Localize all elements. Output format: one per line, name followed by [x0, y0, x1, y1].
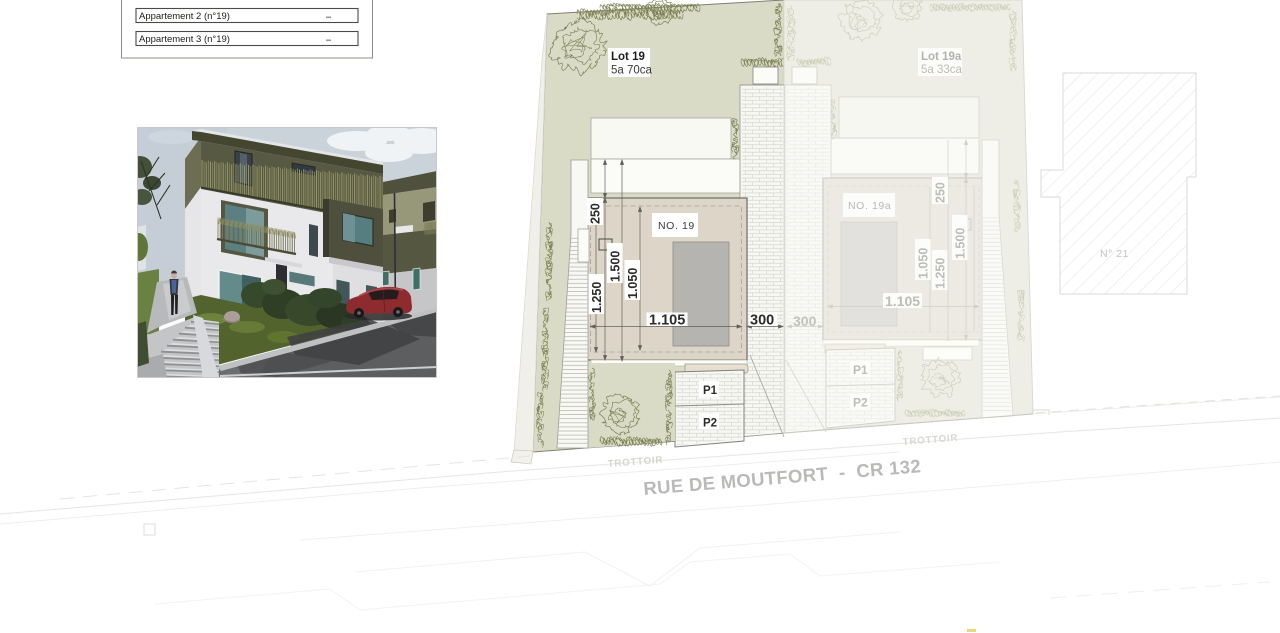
svg-text:1.250: 1.250 — [934, 258, 948, 289]
svg-text:300: 300 — [750, 313, 774, 329]
svg-text:NO. 19a: NO. 19a — [848, 200, 891, 212]
svg-text:1.050: 1.050 — [917, 248, 931, 279]
svg-text:TROTTOIR: TROTTOIR — [607, 455, 663, 470]
svg-text:1.050: 1.050 — [626, 268, 640, 299]
svg-text:NO. 19: NO. 19 — [658, 220, 695, 232]
svg-text:RUE DE MOUTFORT - CR 132: RUE DE MOUTFORT - CR 132 — [643, 455, 922, 499]
svg-text:1.105: 1.105 — [649, 313, 685, 329]
svg-text:N° 21: N° 21 — [1100, 248, 1129, 260]
svg-text:TROTTOIR: TROTTOIR — [902, 433, 958, 448]
svg-text:P2: P2 — [853, 396, 868, 410]
svg-text:1.500: 1.500 — [954, 228, 968, 259]
svg-text:250: 250 — [589, 203, 603, 224]
svg-text:Appartement 2 (n°19): Appartement 2 (n°19) — [139, 11, 230, 22]
svg-text:1.250: 1.250 — [590, 282, 604, 313]
svg-text:5a 33ca: 5a 33ca — [921, 64, 963, 76]
svg-text:Appartement 3 (n°19): Appartement 3 (n°19) — [139, 34, 230, 45]
svg-text:P1: P1 — [703, 385, 718, 397]
svg-text:250: 250 — [934, 182, 948, 203]
svg-text:1.105: 1.105 — [885, 293, 920, 309]
svg-text:P2: P2 — [703, 418, 717, 430]
svg-text:P1: P1 — [853, 363, 868, 377]
svg-text:5a 70ca: 5a 70ca — [611, 65, 653, 77]
svg-text:Lot 19a: Lot 19a — [921, 51, 962, 63]
svg-text:1.500: 1.500 — [609, 251, 623, 282]
svg-text:Lot 19: Lot 19 — [611, 51, 645, 63]
svg-text:300: 300 — [793, 313, 817, 329]
